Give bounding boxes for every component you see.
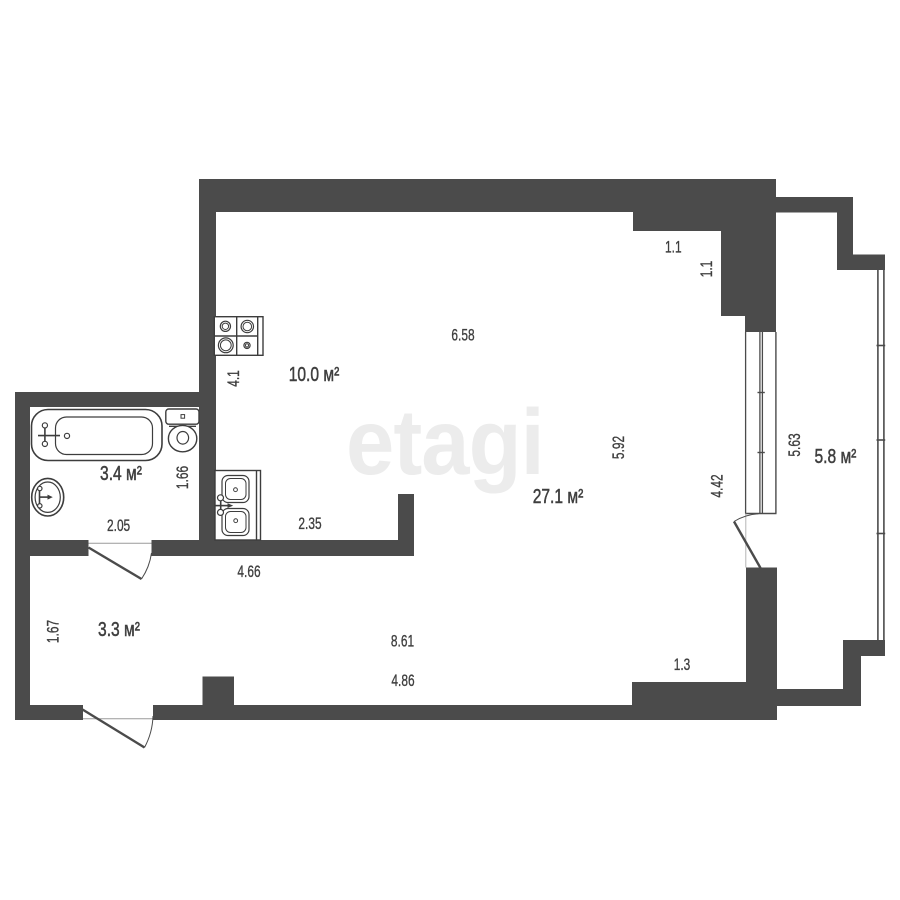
svg-text:2.05: 2.05 bbox=[107, 517, 130, 536]
svg-text:5.8 м²: 5.8 м² bbox=[814, 445, 856, 467]
svg-text:3.3 м²: 3.3 м² bbox=[98, 618, 140, 640]
svg-text:2.35: 2.35 bbox=[298, 515, 321, 534]
svg-text:10.0 м²: 10.0 м² bbox=[289, 363, 340, 385]
svg-text:4.86: 4.86 bbox=[391, 672, 414, 691]
svg-text:5.63: 5.63 bbox=[786, 433, 805, 456]
svg-text:1.66: 1.66 bbox=[174, 466, 193, 489]
svg-text:1.1: 1.1 bbox=[665, 239, 682, 258]
svg-text:4.1: 4.1 bbox=[225, 370, 244, 387]
svg-text:27.1 м²: 27.1 м² bbox=[533, 485, 584, 507]
svg-text:4.66: 4.66 bbox=[237, 563, 260, 582]
svg-text:5.92: 5.92 bbox=[610, 436, 629, 459]
svg-text:1.1: 1.1 bbox=[698, 261, 717, 278]
svg-text:1.3: 1.3 bbox=[674, 656, 691, 675]
svg-text:3.4 м²: 3.4 м² bbox=[100, 462, 142, 484]
svg-text:6.58: 6.58 bbox=[451, 326, 474, 345]
svg-text:etagi: etagi bbox=[346, 391, 544, 494]
svg-text:8.61: 8.61 bbox=[391, 633, 414, 652]
svg-text:1.67: 1.67 bbox=[45, 620, 64, 643]
svg-text:4.42: 4.42 bbox=[708, 474, 727, 497]
